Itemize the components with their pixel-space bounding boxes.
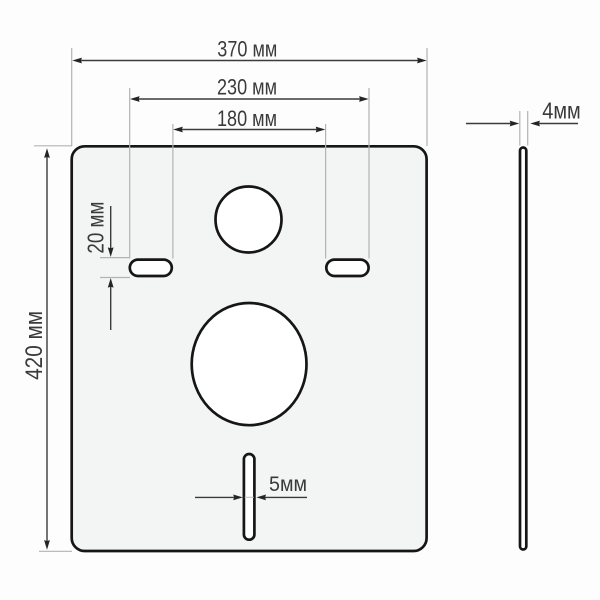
- svg-text:420 мм: 420 мм: [21, 311, 48, 380]
- svg-text:5мм: 5мм: [269, 472, 307, 496]
- svg-text:180 мм: 180 мм: [217, 106, 277, 131]
- svg-text:4мм: 4мм: [542, 98, 581, 124]
- svg-text:370 мм: 370 мм: [217, 36, 277, 61]
- svg-text:20 мм: 20 мм: [82, 202, 108, 254]
- svg-text:230 мм: 230 мм: [217, 75, 277, 100]
